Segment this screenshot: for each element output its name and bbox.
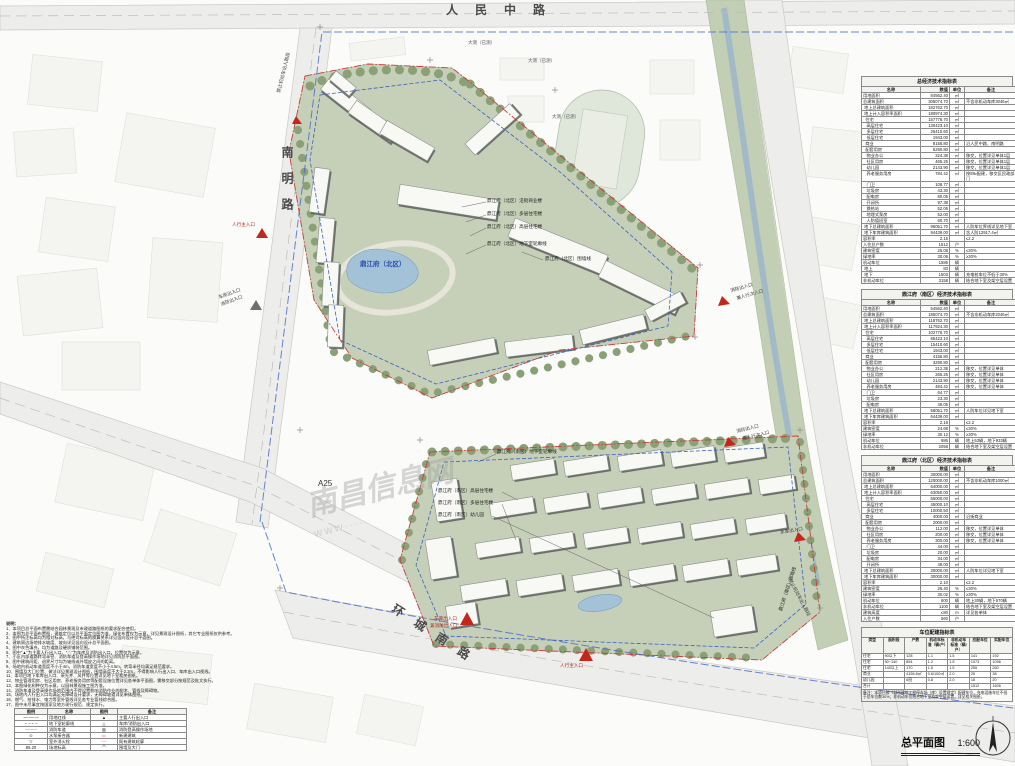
entrance-left-main: 人行主入口 (232, 222, 255, 227)
entrance-bottom-garage: 车库出入口 (434, 616, 457, 621)
entrance-bottom-main: 人行主入口 (560, 663, 583, 668)
callout-north-commercial: 鼎江府（北区）沿街商业楼 (487, 198, 542, 204)
road-label-a25: A25 (318, 479, 332, 488)
callout-north-midrise: 鼎江府（北区）多层住宅楼 (487, 211, 542, 217)
callout-south-basement: 鼎江府（南区）地下室轮廓线 (497, 449, 557, 455)
legend-table: 图例名称图例备注—·—·—用地红线▲主要人行出入口– – – –地下室轮廓线△车… (14, 708, 187, 751)
drawing-title: 总平面图 1:600 (901, 733, 980, 756)
survey-label: 大测（已测） (552, 114, 579, 120)
callout-north-highrise: 鼎江府（北区）高层住宅楼 (487, 224, 542, 230)
callout-north-wall: 鼎江府（北区）围墙线 (545, 256, 591, 262)
north-parcel-label: 鼎江府（北区） (360, 258, 406, 268)
south-parcel (400, 436, 820, 660)
table-south: 鼎江府（南区）经济技术指标表 名称数值单位备注用地面积54562.40㎡总建筑面… (861, 289, 1013, 450)
drawing-title-text: 总平面图 (901, 737, 945, 749)
notes-block: 说明： 1、本项目总平面布置需结合园林景观及市政道路图纸的要求配合使用。2、本图… (6, 622, 376, 708)
callout-south-kindergarten: 鼎江府（南区）幼儿园 (438, 512, 484, 518)
survey-label: 大测（已测） (468, 40, 495, 46)
callout-south-highrise: 鼎江府（南区）高层住宅楼 (438, 488, 493, 494)
entrance-bottom-garage-fire: 兼消防出入口 (430, 623, 458, 628)
notes-list: 1、本项目总平面布置需结合园林景观及市政道路图纸的要求配合使用。2、本图为总平面… (6, 627, 376, 708)
table-south-title: 鼎江府（南区）经济技术指标表 (861, 289, 1013, 299)
table-north-title: 鼎江府（北区）经济技术指标表 (861, 455, 1013, 465)
survey-label: 大测（已测） (528, 58, 555, 64)
table-overall-title: 总经济技术指标表 (861, 76, 1013, 86)
table-parking: 车位配建指标表 类型面积段户数机动车标准（辆/户）非机动车标准（辆/户）应配车位… (861, 627, 1013, 702)
table-parking-title: 车位配建指标表 (861, 627, 1013, 637)
north-arrow-icon (971, 714, 1015, 760)
site-plan-canvas: 人民中路 南明路 环城南路 A25 大测（已测） 大测（已测） 大测（已测） 鼎… (0, 0, 1015, 766)
table-overall: 总经济技术指标表 名称数值单位备注用地面积84562.40㎡总建筑面积30507… (861, 76, 1013, 284)
callout-north-basement: 鼎江府（北区）地下室轮廓线 (487, 241, 547, 247)
table-north: 鼎江府（北区）经济技术指标表 名称数值单位备注用地面积30000.00㎡总建筑面… (861, 455, 1013, 622)
table-parking-note: 备注：本项目按《城市建筑工程停车场（库）设置规定》配建车位，充电设施车位不低于总… (861, 690, 1013, 702)
road-label-nanming: 南明路 (279, 146, 296, 224)
indicator-panel: 总经济技术指标表 名称数值单位备注用地面积84562.40㎡总建筑面积30507… (861, 76, 1013, 707)
callout-south-midrise: 鼎江府（南区）多层住宅楼 (438, 500, 493, 506)
road-label-renmin: 人民中路 (446, 1, 562, 18)
